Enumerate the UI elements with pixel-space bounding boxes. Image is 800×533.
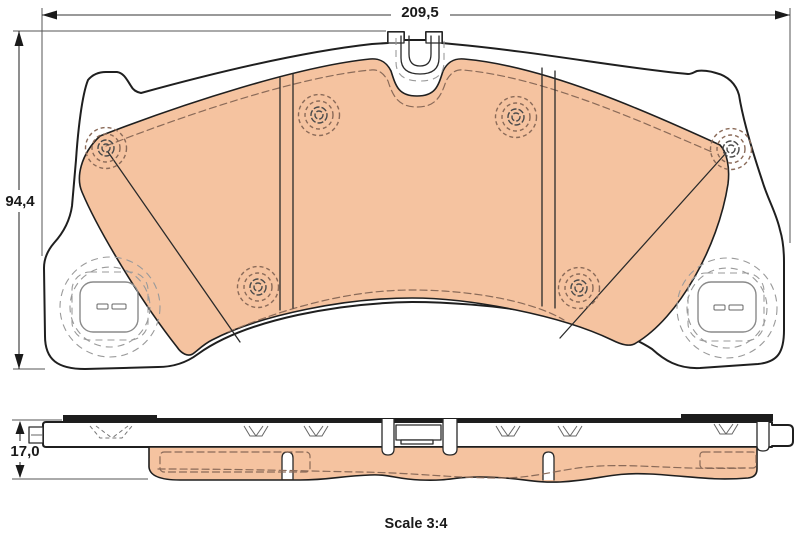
side-groove-left: [282, 452, 293, 479]
shim-bar: [63, 414, 773, 422]
dimension-width-label: 209,5: [401, 4, 439, 21]
side-view: [29, 414, 793, 482]
brake-pad-drawing: 209,5 94,4 17,0 Scale 3:4: [0, 0, 800, 533]
dimension-thickness-label: 17,0: [10, 443, 39, 460]
dimension-height-label: 94,4: [5, 193, 35, 210]
side-groove-right: [543, 452, 554, 480]
side-left-ear: [29, 427, 43, 443]
right-lug-detail: [677, 258, 777, 358]
scale-label: Scale 3:4: [385, 516, 448, 532]
friction-material: [79, 59, 728, 355]
plan-view: [44, 32, 784, 369]
technical-drawing-page: 209,5 94,4 17,0 Scale 3:4: [0, 0, 800, 533]
